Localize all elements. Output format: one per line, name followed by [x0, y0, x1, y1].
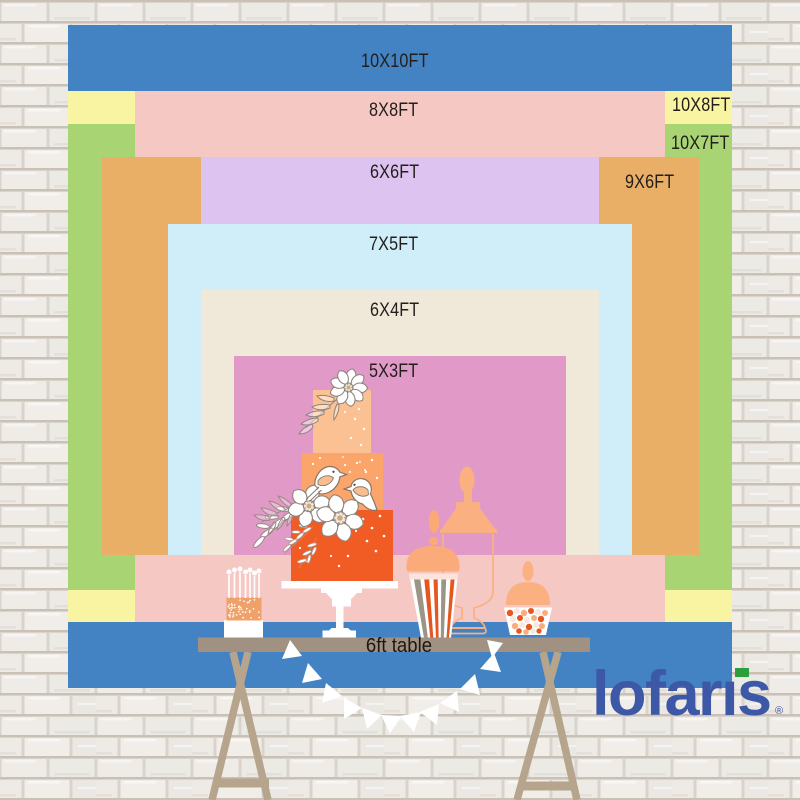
svg-text:6ft table: 6ft table: [366, 635, 432, 657]
